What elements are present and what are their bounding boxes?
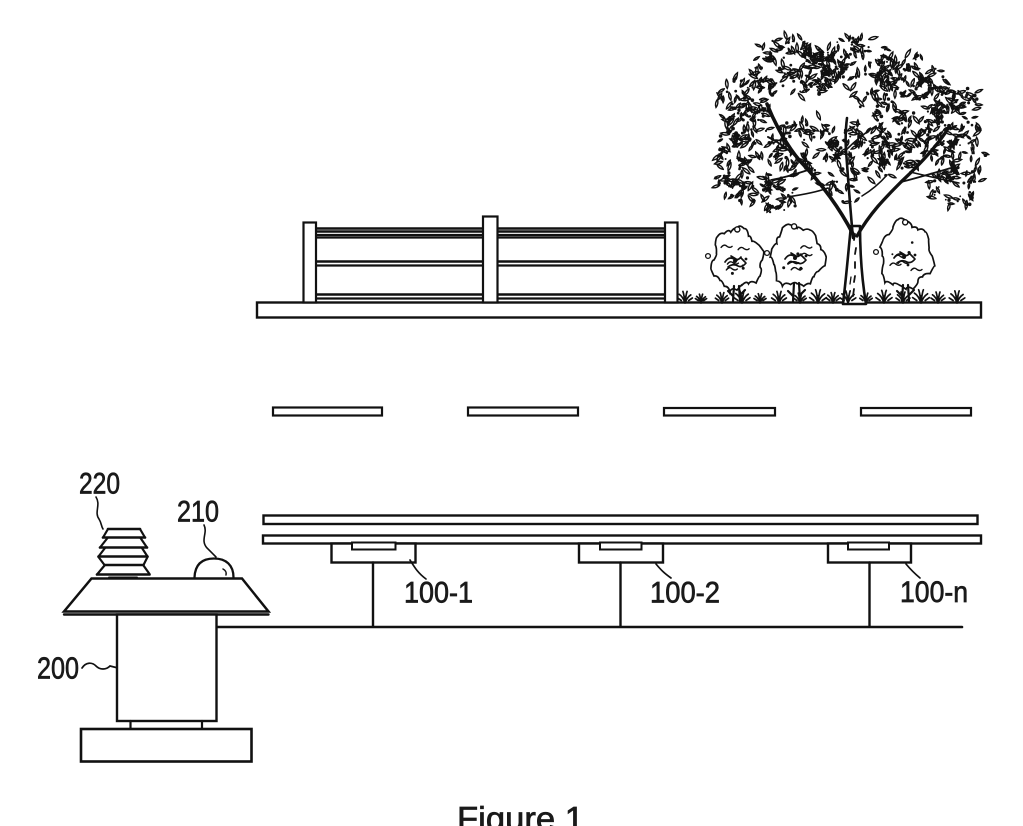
svg-text:200: 200 xyxy=(37,651,79,686)
svg-text:100-1: 100-1 xyxy=(404,577,473,610)
svg-text:100-2: 100-2 xyxy=(650,577,720,610)
svg-text:Figure 1: Figure 1 xyxy=(457,800,584,826)
svg-text:220: 220 xyxy=(79,468,120,501)
svg-text:100-n: 100-n xyxy=(900,576,968,609)
svg-text:210: 210 xyxy=(177,496,219,529)
